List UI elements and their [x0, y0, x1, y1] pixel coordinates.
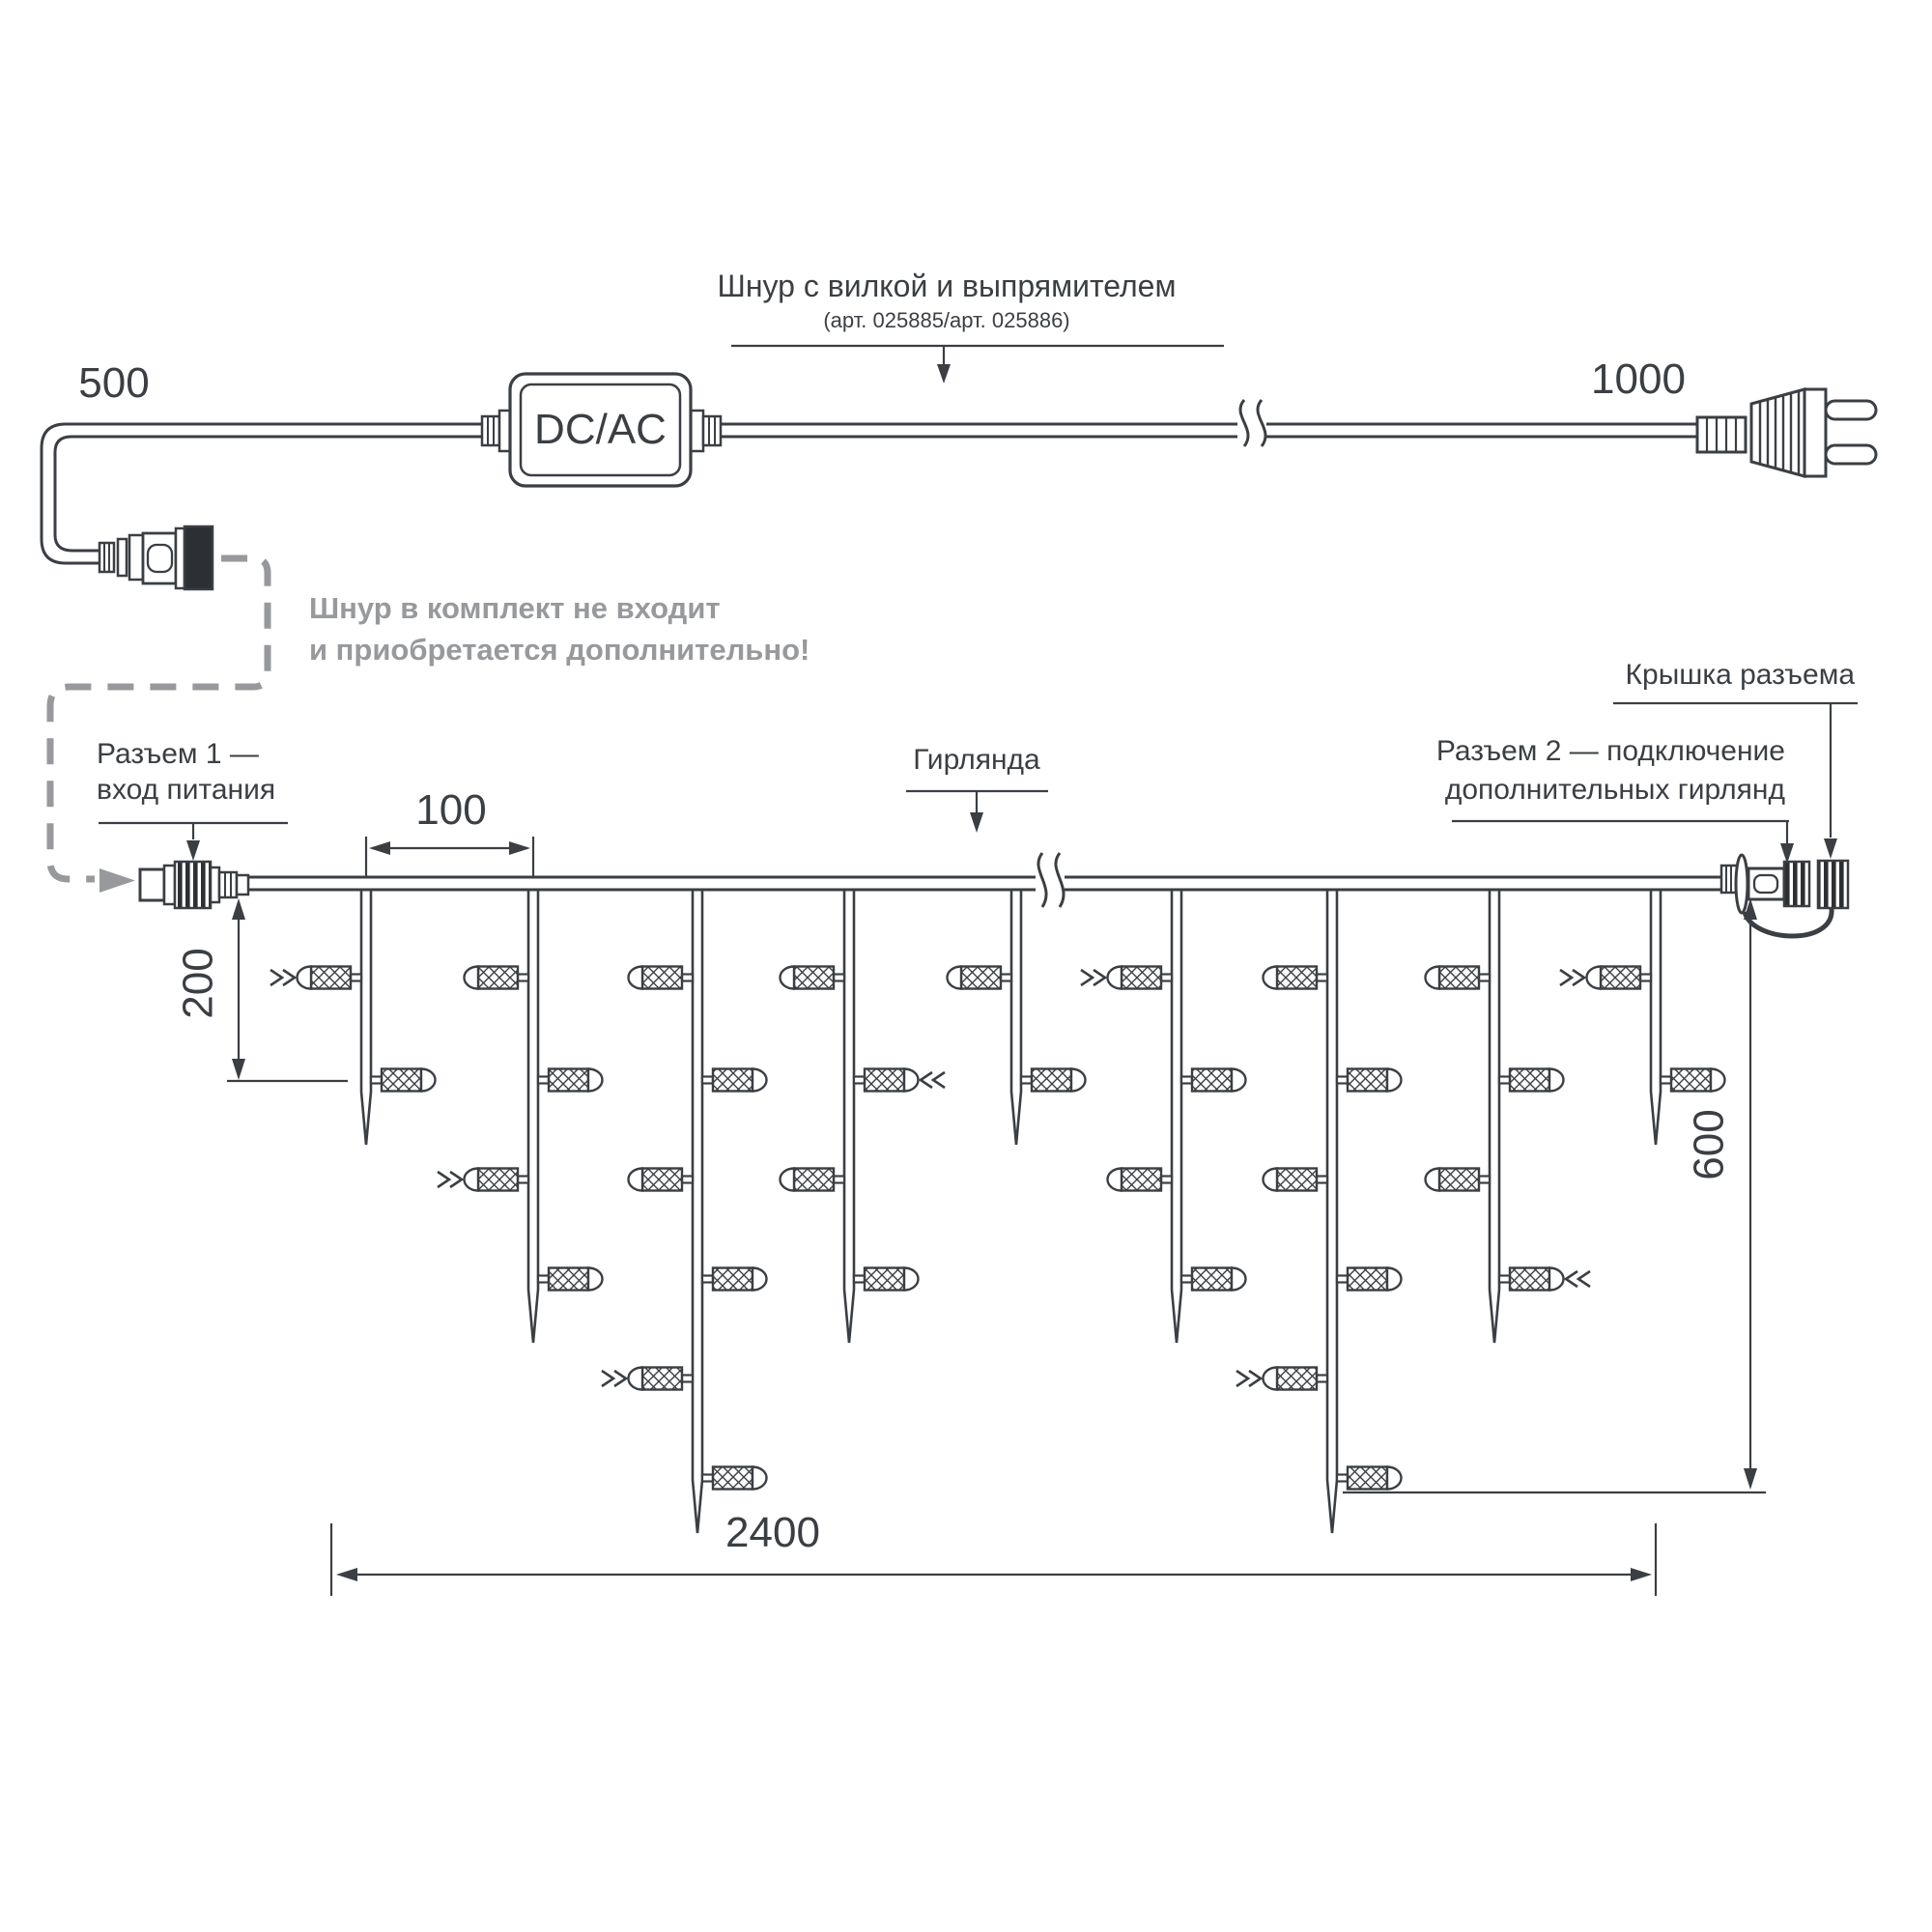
- connector1-label-line2: вход питания: [97, 774, 275, 808]
- blink-arrow-icon: [1566, 1271, 1590, 1287]
- cable-break-icon: [1240, 400, 1248, 446]
- drop-wire: [1327, 890, 1337, 1533]
- led-bulb-icon: [1264, 1368, 1328, 1390]
- dim-200-label: 200: [175, 948, 224, 1018]
- drop-wire: [693, 890, 702, 1533]
- power-plug: [1697, 389, 1876, 476]
- down-arrow-icon: [186, 840, 200, 861]
- cable-left-inner: [55, 437, 482, 551]
- dim-600: [1343, 916, 1766, 1492]
- garland-drop: [1560, 890, 1725, 1145]
- dim-200: [227, 916, 348, 1081]
- led-bulb-icon: [538, 1268, 603, 1291]
- led-bulb-icon: [1337, 1268, 1402, 1291]
- connector2-label-line2: дополнительных гирлянд: [1399, 774, 1785, 808]
- blink-arrow-icon: [1560, 970, 1584, 985]
- led-bulb-icon: [538, 1069, 603, 1092]
- wire-break-icon: [1056, 853, 1064, 907]
- connector-2-garland: [1721, 855, 1848, 936]
- gray-arrow-icon: [99, 868, 135, 893]
- led-bulb-icon: [1426, 967, 1491, 989]
- blink-arrow-icon: [921, 1072, 945, 1088]
- led-bulb-icon: [1108, 967, 1173, 989]
- led-bulb-icon: [781, 1169, 845, 1191]
- dim-600-label: 600: [1686, 1109, 1735, 1179]
- garland-drop: [781, 890, 946, 1343]
- cap-tether: [1745, 908, 1832, 936]
- dim-100: [366, 837, 533, 877]
- dim-arrow-icon: [509, 841, 530, 855]
- cap-label: Крышка разъема: [1555, 659, 1855, 693]
- led-bulb-icon: [702, 1467, 767, 1490]
- led-bulb-icon: [702, 1268, 767, 1291]
- cord-title: Шнур с вилкой и выпрямителем: [705, 269, 1188, 304]
- cord-subtitle: (арт. 025885/арт. 025886): [705, 308, 1188, 332]
- drop-wire: [528, 890, 538, 1343]
- garland-drop: [948, 890, 1086, 1145]
- drop-wire: [1490, 890, 1499, 1343]
- down-arrow-icon: [970, 812, 983, 833]
- connector-cap-black: [185, 526, 213, 589]
- converter-label: DC/AC: [510, 406, 691, 455]
- blink-arrow-icon: [1081, 970, 1105, 985]
- icicle-garland-scheme: Шнур с вилкой и выпрямителем (арт. 02588…: [0, 0, 1932, 1932]
- garland-drops: [270, 890, 1725, 1533]
- dim-100-label: 100: [393, 786, 509, 836]
- led-bulb-icon: [629, 1368, 694, 1390]
- blink-arrow-icon: [1236, 1371, 1261, 1386]
- down-arrow-icon: [1824, 838, 1837, 859]
- led-bulb-icon: [702, 1069, 767, 1092]
- led-bulb-icon: [854, 1268, 919, 1291]
- led-bulb-icon: [1661, 1069, 1725, 1092]
- led-bulb-icon: [1264, 967, 1328, 989]
- led-bulb-icon: [465, 1169, 529, 1191]
- led-bulb-icon: [781, 967, 845, 989]
- connector1-label-line1: Разъем 1 —: [97, 738, 259, 772]
- cord-label-leader: [731, 346, 1224, 366]
- drop-wire: [1651, 890, 1661, 1145]
- led-bulb-icon: [1587, 967, 1652, 989]
- connector-ribbed-block: [1784, 862, 1809, 906]
- led-bulb-icon: [465, 967, 529, 989]
- dim-arrow-icon: [336, 1568, 357, 1581]
- connector-1-garland: [140, 862, 248, 908]
- led-bulb-icon: [1264, 1169, 1328, 1191]
- connector-cap: [1818, 861, 1848, 908]
- garland-drop: [438, 890, 603, 1343]
- connector-ribbed-block: [175, 862, 211, 908]
- wire-break-icon: [1038, 853, 1046, 907]
- dim-500-label: 500: [46, 359, 182, 409]
- blink-arrow-icon: [602, 1371, 626, 1386]
- connector2-label-line1: Разъем 2 — подключение: [1399, 735, 1785, 769]
- drop-wire: [361, 890, 371, 1145]
- led-bulb-icon: [1108, 1169, 1173, 1191]
- dim-2400: [331, 1523, 1656, 1596]
- dashed-route: [50, 558, 268, 893]
- led-bulb-icon: [1426, 1169, 1491, 1191]
- blink-arrow-icon: [438, 1172, 462, 1187]
- garland-drop: [602, 890, 767, 1533]
- led-bulb-icon: [1499, 1268, 1564, 1291]
- led-bulb-icon: [1499, 1069, 1564, 1092]
- drop-wire: [1172, 890, 1181, 1343]
- note-line1: Шнур в комплект не входит: [309, 591, 721, 626]
- blink-arrow-icon: [270, 970, 295, 985]
- led-bulb-icon: [1021, 1069, 1086, 1092]
- garland-drop: [270, 890, 436, 1145]
- plug-prong-icon: [1826, 401, 1876, 419]
- dim-arrow-icon: [232, 898, 245, 920]
- led-bulb-icon: [1337, 1069, 1402, 1092]
- dim-arrow-icon: [1631, 1568, 1652, 1581]
- connector-1-cord: [99, 526, 213, 589]
- led-bulb-icon: [1181, 1069, 1246, 1092]
- garland-drop: [1236, 890, 1402, 1533]
- led-bulb-icon: [948, 967, 1012, 989]
- led-bulb-icon: [371, 1069, 436, 1092]
- led-bulb-icon: [298, 967, 362, 989]
- garland-drop: [1426, 890, 1591, 1343]
- garland-drop: [1081, 890, 1246, 1343]
- led-bulb-icon: [629, 967, 694, 989]
- plug-prong-icon: [1826, 445, 1876, 464]
- drop-wire: [844, 890, 854, 1343]
- cable-break-icon: [1258, 400, 1265, 446]
- note-line2: и приобретается дополнительно!: [309, 633, 810, 668]
- dim-arrow-icon: [369, 841, 390, 855]
- garland-label: Гирлянда: [880, 744, 1073, 778]
- drop-wire: [1011, 890, 1021, 1145]
- led-bulb-icon: [1337, 1467, 1402, 1490]
- power-cord-cable: [42, 400, 1697, 563]
- dim-arrow-icon: [1744, 1468, 1757, 1490]
- led-bulb-icon: [854, 1069, 919, 1092]
- led-bulb-icon: [1181, 1268, 1246, 1291]
- dim-arrow-icon: [232, 1059, 245, 1080]
- led-bulb-icon: [629, 1169, 694, 1191]
- dim-2400-label: 2400: [676, 1509, 869, 1558]
- dim-1000-label: 1000: [1561, 355, 1716, 405]
- down-arrow-icon: [937, 364, 951, 384]
